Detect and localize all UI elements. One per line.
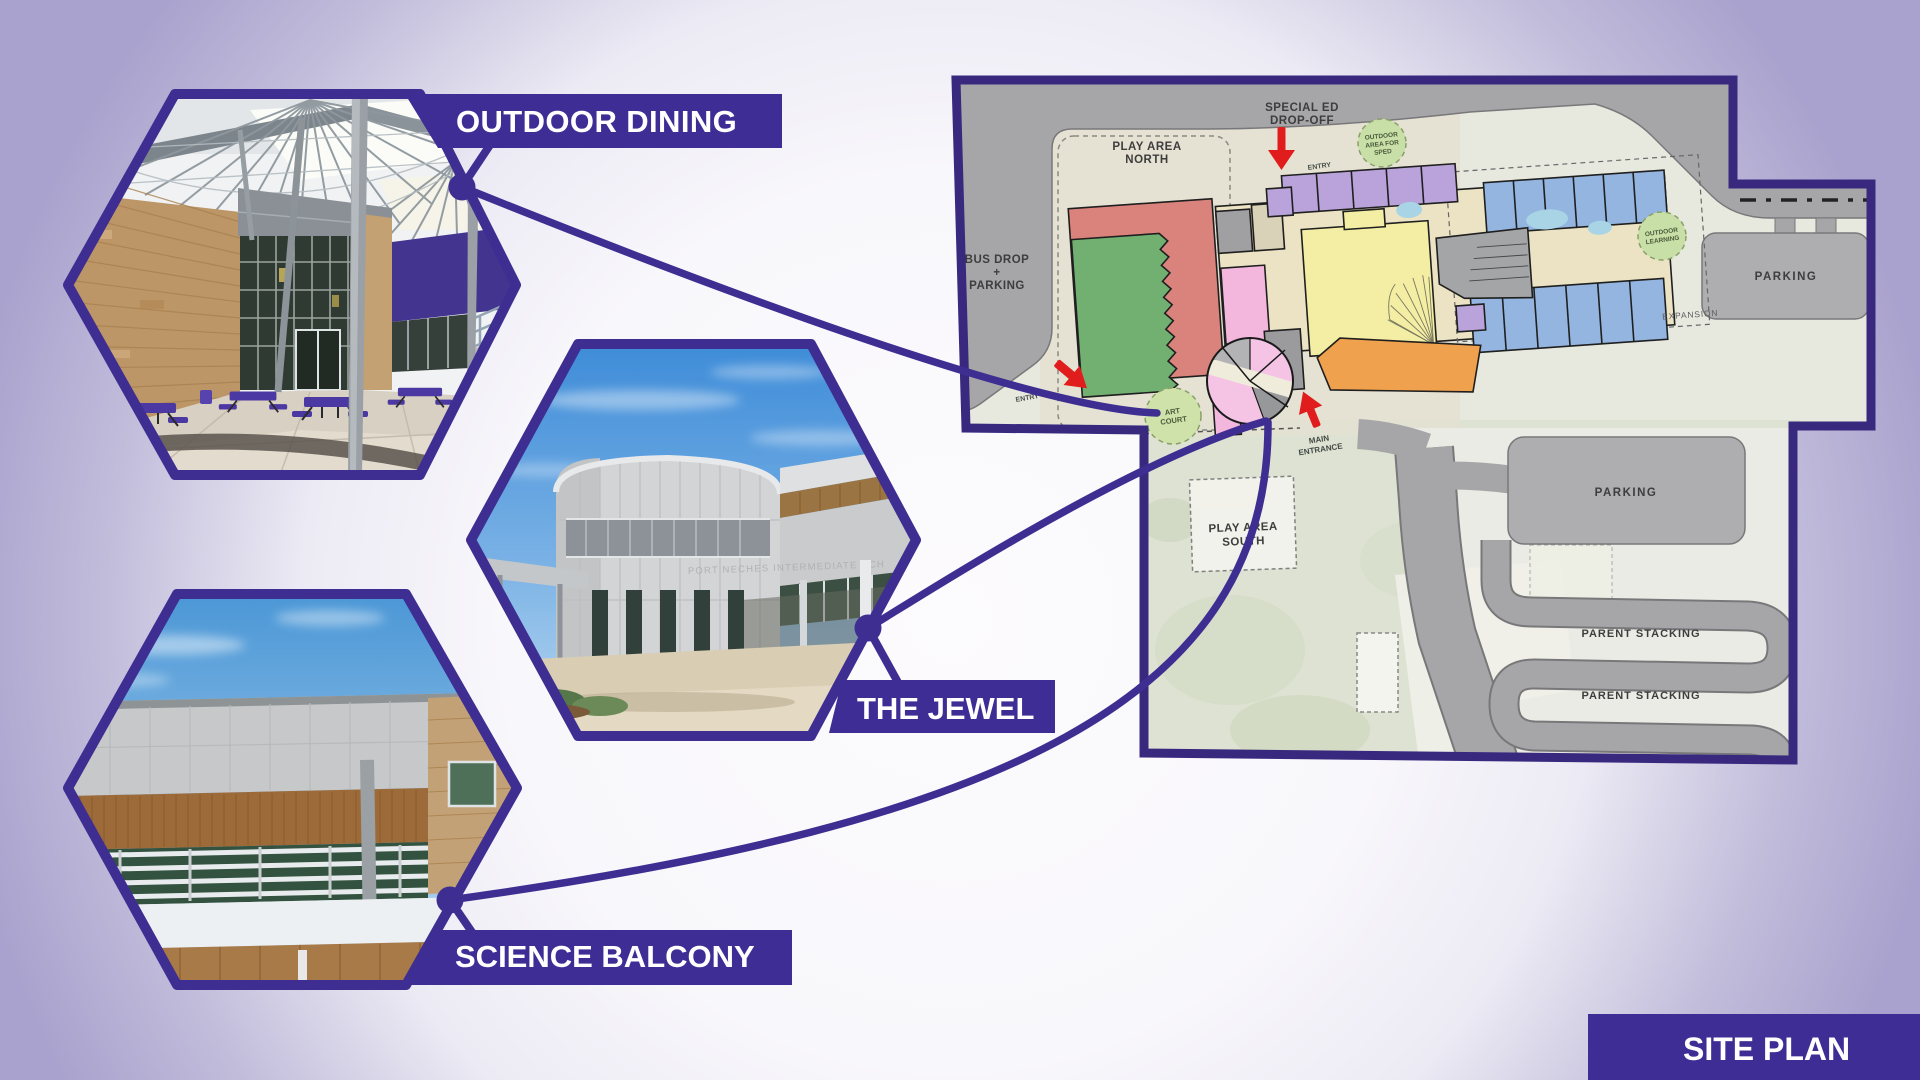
svg-text:NORTH: NORTH — [1125, 154, 1168, 166]
svg-text:DROP-OFF: DROP-OFF — [1270, 115, 1334, 127]
svg-text:PARENT STACKING: PARENT STACKING — [1581, 628, 1700, 640]
svg-text:PARKING: PARKING — [1755, 271, 1818, 283]
svg-text:PLAY AREA: PLAY AREA — [1208, 521, 1278, 535]
svg-text:PARENT STACKING: PARENT STACKING — [1581, 690, 1700, 702]
svg-text:SITE PLAN: SITE PLAN — [1683, 1031, 1850, 1067]
svg-text:PLAY AREA: PLAY AREA — [1112, 141, 1181, 153]
svg-text:PARKING: PARKING — [1595, 487, 1658, 499]
svg-text:BUS DROP: BUS DROP — [965, 254, 1030, 266]
svg-text:THE JEWEL: THE JEWEL — [857, 691, 1034, 726]
svg-text:SPECIAL ED: SPECIAL ED — [1265, 102, 1339, 114]
svg-text:OUTDOOR DINING: OUTDOOR DINING — [456, 104, 737, 139]
svg-text:SCIENCE BALCONY: SCIENCE BALCONY — [455, 939, 755, 974]
svg-text:+: + — [993, 267, 1000, 279]
svg-text:PARKING: PARKING — [969, 280, 1025, 292]
